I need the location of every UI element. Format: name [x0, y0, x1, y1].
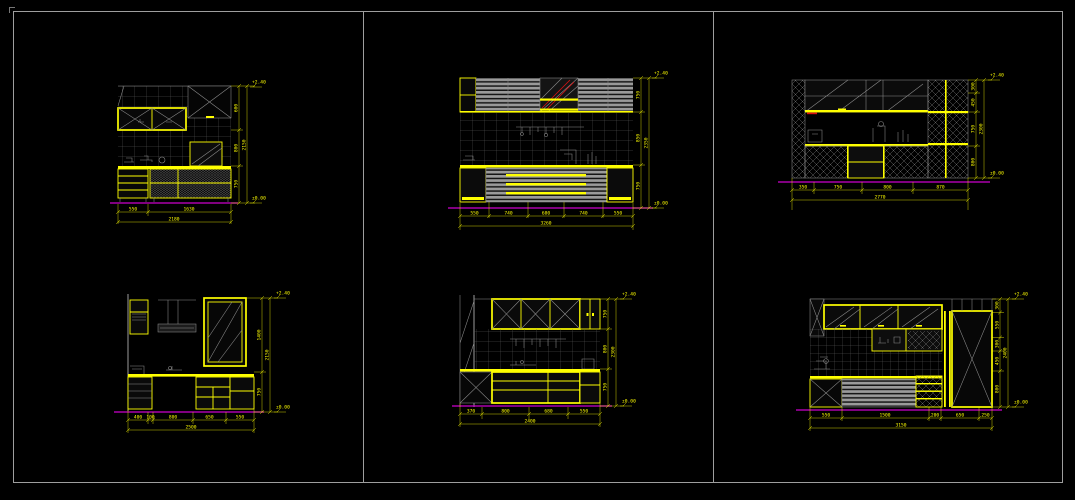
- base-cabinet-left[interactable]: [128, 377, 152, 409]
- svg-text:550: 550: [580, 409, 589, 415]
- svg-text:+2.40: +2.40: [622, 292, 636, 298]
- dimension-right[interactable]: 300 450 750 800 2300: [968, 78, 992, 180]
- dimension-bottom[interactable]: 350 750 800 870 2770: [790, 178, 970, 210]
- soffit-grid: [952, 299, 992, 311]
- svg-text:750: 750: [603, 383, 609, 392]
- base-cabinet-corner[interactable]: [810, 379, 842, 407]
- svg-text:450: 450: [971, 98, 977, 107]
- dimension-right[interactable]: 600 800 750 2150: [231, 84, 255, 205]
- svg-text:2150: 2150: [242, 139, 248, 150]
- svg-text:800: 800: [883, 185, 892, 191]
- svg-text:550: 550: [470, 211, 479, 217]
- base-cabinet-drawers[interactable]: [118, 169, 148, 198]
- upper-glass-cabinets[interactable]: [824, 305, 942, 329]
- svg-text:850: 850: [636, 134, 642, 143]
- svg-text:740: 740: [504, 211, 513, 217]
- svg-text:+2.40: +2.40: [252, 80, 266, 86]
- elevation-drawing-5[interactable]: 370 800 680 550 2400 750 800 750 2300 +2…: [452, 281, 667, 443]
- svg-text:800: 800: [995, 385, 1001, 394]
- svg-text:800: 800: [501, 409, 510, 415]
- dimension-right[interactable]: 300 550 300 450 800 2400: [992, 297, 1016, 409]
- svg-text:2400: 2400: [1003, 347, 1009, 358]
- svg-text:350: 350: [799, 185, 808, 191]
- level-marker-floor[interactable]: ±0.00: [250, 196, 266, 204]
- svg-text:±0.00: ±0.00: [622, 399, 636, 405]
- countertop[interactable]: [128, 374, 254, 377]
- base-cabinet-left[interactable]: [460, 168, 486, 202]
- svg-text:750: 750: [636, 182, 642, 191]
- svg-text:200: 200: [931, 413, 940, 419]
- svg-text:750: 750: [636, 91, 642, 100]
- left-upper-cabinet[interactable]: [130, 300, 148, 334]
- base-cabinet-right[interactable]: [580, 372, 600, 403]
- elevation-drawing-6[interactable]: 550 1500 200 650 250 3150 300 550 300 45…: [786, 281, 1044, 443]
- svg-text:750: 750: [603, 310, 609, 319]
- level-marker-floor[interactable]: ±0.00: [1012, 400, 1028, 408]
- svg-text:750: 750: [971, 125, 977, 134]
- cabinet-feet: [120, 198, 228, 202]
- svg-text:800: 800: [169, 415, 178, 421]
- svg-text:2150: 2150: [265, 349, 271, 360]
- countertop-items[interactable]: [130, 366, 182, 374]
- svg-text:800: 800: [234, 144, 240, 153]
- dimension-right[interactable]: 750 850 750 2350: [633, 76, 657, 210]
- svg-text:1400: 1400: [257, 329, 263, 340]
- svg-text:2300: 2300: [979, 123, 985, 134]
- svg-text:650: 650: [956, 413, 965, 419]
- upper-glass-cabinets[interactable]: [805, 80, 928, 112]
- elevation-drawing-1[interactable]: 550 1630 2180 600 800 750 2150 +2.40 ±0.…: [110, 76, 305, 234]
- svg-text:740: 740: [579, 211, 588, 217]
- range-hood[interactable]: [158, 300, 196, 332]
- svg-text:3150: 3150: [895, 423, 906, 429]
- svg-text:550: 550: [995, 321, 1001, 330]
- svg-text:750: 750: [257, 388, 263, 397]
- left-upper-cabinet[interactable]: [460, 78, 476, 112]
- wall-tiles[interactable]: [474, 329, 600, 369]
- elevation-drawing-3[interactable]: 350 750 800 870 2770 300 450 750 800 230…: [778, 70, 1034, 240]
- svg-text:450: 450: [995, 357, 1001, 366]
- base-drawers-hatched[interactable]: [916, 376, 942, 407]
- level-marker-top[interactable]: +2.40: [652, 71, 668, 79]
- level-marker-top[interactable]: +2.40: [274, 291, 290, 299]
- svg-text:+2.40: +2.40: [276, 291, 290, 297]
- side-panel[interactable]: [944, 311, 951, 407]
- svg-text:±0.00: ±0.00: [252, 196, 266, 202]
- right-hatch-column[interactable]: [928, 80, 968, 178]
- cad-canvas[interactable]: 550 1630 2180 600 800 750 2150 +2.40 ±0.…: [0, 0, 1075, 500]
- svg-text:750: 750: [234, 180, 240, 189]
- svg-text:2500: 2500: [185, 425, 196, 431]
- level-marker-top[interactable]: +2.40: [620, 292, 636, 300]
- open-shelf[interactable]: [872, 329, 942, 351]
- svg-text:1500: 1500: [879, 413, 890, 419]
- glass-display-cabinet[interactable]: [188, 86, 231, 118]
- svg-text:100: 100: [146, 415, 155, 421]
- left-hatch-panel[interactable]: [792, 80, 805, 178]
- dimension-right[interactable]: 750 800 750 2300: [600, 297, 624, 408]
- dimension-bottom[interactable]: 550 1630 2180: [116, 204, 233, 224]
- dimension-bottom[interactable]: 550 740 680 740 550 3260: [458, 202, 635, 230]
- base-drawers-slats[interactable]: [842, 379, 916, 407]
- base-drawers[interactable]: [196, 377, 230, 409]
- svg-text:800: 800: [971, 158, 977, 167]
- level-marker-top[interactable]: +2.40: [988, 73, 1004, 81]
- svg-text:+2.40: +2.40: [1014, 292, 1028, 298]
- svg-text:±0.00: ±0.00: [1014, 400, 1028, 406]
- base-cabinets[interactable]: [805, 146, 928, 178]
- level-marker-floor[interactable]: ±0.00: [652, 201, 668, 209]
- svg-text:2300: 2300: [611, 346, 617, 357]
- svg-text:2350: 2350: [644, 137, 650, 148]
- upper-wall-cabinets[interactable]: [118, 108, 186, 130]
- level-marker-floor[interactable]: ±0.00: [620, 399, 636, 407]
- counter-window[interactable]: [190, 142, 222, 166]
- svg-text:2770: 2770: [874, 195, 885, 201]
- base-drawers[interactable]: [492, 372, 580, 403]
- tall-cabinet-door[interactable]: [952, 311, 992, 407]
- svg-text:800: 800: [603, 345, 609, 354]
- elevation-drawing-2[interactable]: 550 740 680 740 550 3260 750 850 750 235…: [448, 70, 676, 236]
- svg-text:680: 680: [544, 409, 553, 415]
- level-marker-top[interactable]: +2.40: [1012, 292, 1028, 300]
- svg-text:550: 550: [129, 207, 138, 213]
- svg-text:±0.00: ±0.00: [276, 405, 290, 411]
- base-drawers[interactable]: [486, 168, 607, 202]
- countertop[interactable]: [460, 165, 633, 168]
- svg-text:2400: 2400: [524, 419, 535, 425]
- svg-text:300: 300: [971, 82, 977, 91]
- wall-tiles[interactable]: [460, 113, 633, 165]
- svg-text:600: 600: [234, 104, 240, 113]
- hood-red-accent: [807, 113, 817, 115]
- svg-text:650: 650: [205, 415, 214, 421]
- svg-text:+2.40: +2.40: [990, 73, 1004, 79]
- svg-text:300: 300: [995, 340, 1001, 349]
- base-cabinet-right[interactable]: [607, 168, 633, 202]
- svg-text:870: 870: [936, 185, 945, 191]
- level-marker-floor[interactable]: ±0.00: [274, 405, 290, 413]
- svg-text:1630: 1630: [183, 207, 194, 213]
- svg-text:680: 680: [542, 211, 551, 217]
- svg-text:550: 550: [236, 415, 245, 421]
- svg-text:+2.40: +2.40: [654, 71, 668, 77]
- svg-text:±0.00: ±0.00: [990, 171, 1004, 177]
- svg-text:2180: 2180: [168, 217, 179, 223]
- svg-text:550: 550: [822, 413, 831, 419]
- base-cabinet-hatched[interactable]: [150, 169, 231, 198]
- svg-text:400: 400: [134, 415, 143, 421]
- upper-cabinet-right[interactable]: [580, 299, 600, 329]
- svg-text:300: 300: [995, 301, 1001, 310]
- counter-appliances[interactable]: [808, 122, 908, 143]
- range-hood-glass[interactable]: [540, 78, 578, 112]
- base-cabinet-corner[interactable]: [460, 372, 492, 403]
- sheet-divider-right: [713, 11, 714, 483]
- svg-text:750: 750: [834, 185, 843, 191]
- svg-text:250: 250: [981, 413, 990, 419]
- svg-text:370: 370: [467, 409, 476, 415]
- level-marker-floor[interactable]: ±0.00: [988, 171, 1004, 179]
- window-mirror[interactable]: [204, 298, 246, 366]
- svg-text:550: 550: [614, 211, 623, 217]
- upper-cabinet-trim: [460, 111, 633, 113]
- elevation-drawing-4[interactable]: 400 100 800 650 550 2500 1400 750 2150 +…: [106, 286, 306, 438]
- base-cabinet-right[interactable]: [230, 377, 254, 409]
- sheet-divider-left: [363, 11, 364, 483]
- svg-text:±0.00: ±0.00: [654, 201, 668, 207]
- svg-text:3260: 3260: [540, 221, 551, 227]
